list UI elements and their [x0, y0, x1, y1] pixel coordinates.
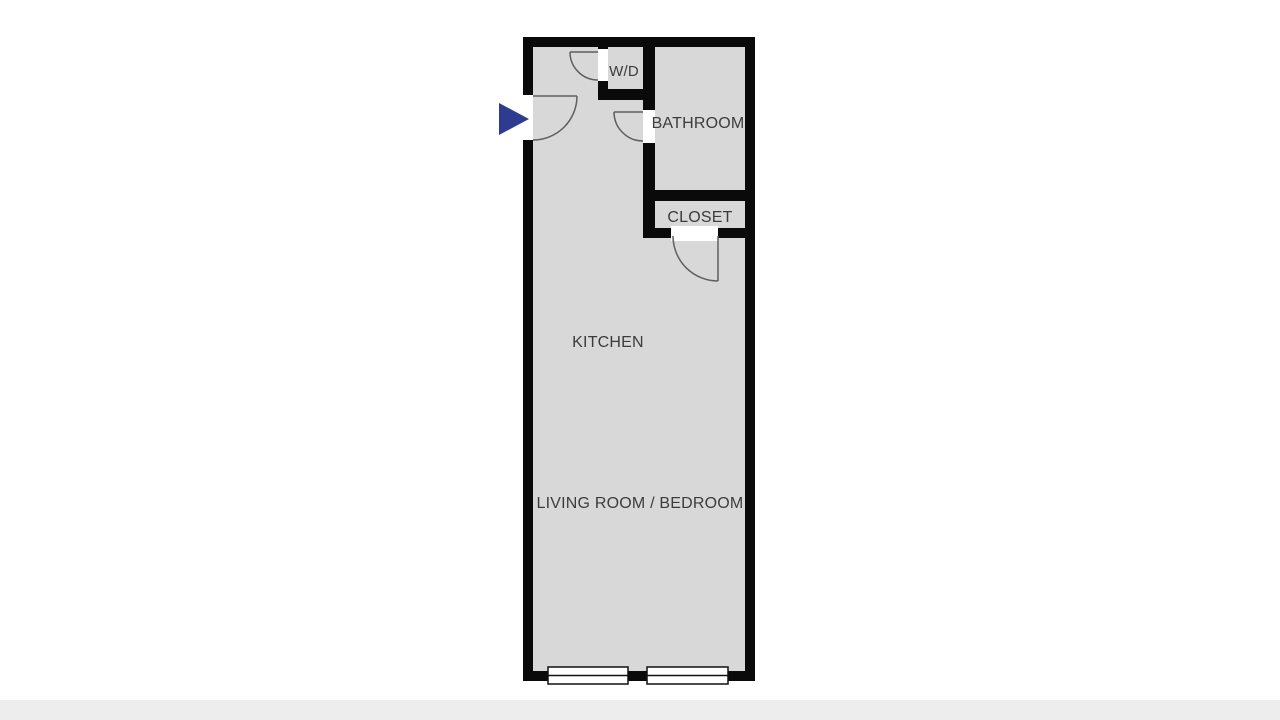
- footer-bar: [0, 700, 1280, 720]
- room-label-wd: W/D: [609, 63, 639, 80]
- window-left: [548, 667, 628, 684]
- window-right: [647, 667, 728, 684]
- apartment-floor: [528, 42, 750, 676]
- wd-door-opening: [598, 49, 608, 81]
- room-label-closet: CLOSET: [667, 209, 732, 226]
- wall-right: [745, 37, 755, 681]
- wall-bathroom-bottom: [643, 190, 755, 201]
- room-label-living-bedroom: LIVING ROOM / BEDROOM: [537, 495, 744, 512]
- closet-door-opening: [671, 226, 718, 241]
- room-label-bathroom: BATHROOM: [652, 115, 745, 132]
- floorplan-diagram: W/D BATHROOM CLOSET KITCHEN LIVING ROOM …: [0, 0, 1280, 720]
- wall-top: [523, 37, 755, 47]
- room-label-kitchen: KITCHEN: [572, 334, 644, 351]
- floorplan-page: W/D BATHROOM CLOSET KITCHEN LIVING ROOM …: [0, 0, 1280, 720]
